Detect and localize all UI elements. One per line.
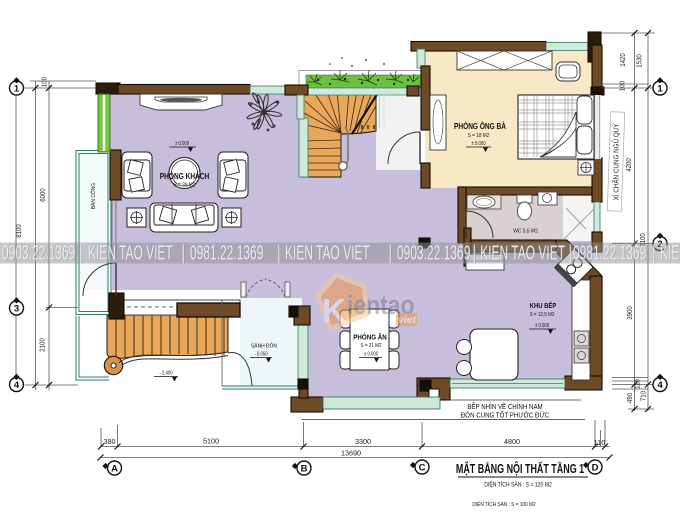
svg-text:PHÒNG KHÁCH: PHÒNG KHÁCH <box>160 171 209 181</box>
svg-text:710: 710 <box>640 391 648 401</box>
svg-text:4: 4 <box>657 380 663 391</box>
svg-text:4200: 4200 <box>626 158 634 172</box>
svg-text:B: B <box>301 464 308 475</box>
svg-text:viet: viet <box>398 314 417 326</box>
svg-text:BAN CÔNG: BAN CÔNG <box>90 183 98 209</box>
svg-text:13690: 13690 <box>341 449 361 458</box>
svg-text:± 0.000: ± 0.000 <box>364 351 378 356</box>
svg-text:100: 100 <box>619 81 627 91</box>
svg-text:WC 5,5 M2: WC 5,5 M2 <box>513 228 538 234</box>
svg-text:1: 1 <box>14 84 20 95</box>
svg-text:DIỆN TÍCH SÀN : S = 100 M2: DIỆN TÍCH SÀN : S = 100 M2 <box>472 500 535 509</box>
svg-text:3: 3 <box>14 304 19 315</box>
svg-text:SẢNH ĐÓN: SẢNH ĐÓN <box>251 342 277 350</box>
svg-text:D: D <box>592 463 599 474</box>
svg-text:± 0.000: ± 0.000 <box>471 141 485 146</box>
svg-text:490: 490 <box>627 393 635 403</box>
svg-text:PHÒNG ÔNG BÀ: PHÒNG ÔNG BÀ <box>454 121 507 131</box>
svg-text:C: C <box>419 463 426 474</box>
svg-text:380: 380 <box>104 437 116 446</box>
svg-text:S = 21 M2: S = 21 M2 <box>360 343 381 349</box>
svg-text:5100: 5100 <box>203 437 219 446</box>
svg-text:4: 4 <box>14 380 20 391</box>
svg-text:DIỆN TÍCH SÀN : S = 120 M2: DIỆN TÍCH SÀN : S = 120 M2 <box>484 480 552 489</box>
svg-text:S = 39 M2: S = 39 M2 <box>174 182 196 188</box>
svg-text:A: A <box>111 464 118 475</box>
svg-text:8100: 8100 <box>16 224 24 238</box>
svg-text:0903.22.1369|KIEN TAO VIET|098: 0903.22.1369|KIEN TAO VIET|0981.22.1369|… <box>2 243 680 265</box>
svg-text:100: 100 <box>41 77 49 87</box>
svg-text:K: K <box>322 292 346 329</box>
svg-text:2100: 2100 <box>39 338 47 352</box>
svg-text:6000: 6000 <box>40 188 48 202</box>
svg-text:- 2.400: - 2.400 <box>159 370 173 375</box>
svg-text:PHÒNG ĂN: PHÒNG ĂN <box>353 332 387 342</box>
svg-text:S = 18 M2: S = 18 M2 <box>468 133 490 139</box>
svg-text:- 0.050: - 0.050 <box>254 351 268 356</box>
svg-text:110: 110 <box>594 438 605 447</box>
svg-text:3900: 3900 <box>627 306 635 320</box>
svg-text:± 0.000: ± 0.000 <box>175 141 189 146</box>
svg-text:3300: 3300 <box>355 437 371 446</box>
svg-text:± 0.000: ± 0.000 <box>535 323 549 328</box>
svg-text:S = 12,5 M2: S = 12,5 M2 <box>530 312 555 318</box>
svg-text:4800: 4800 <box>504 437 520 446</box>
svg-text:MẶT BẰNG NỘI THẤT TẦNG 1: MẶT BẰNG NỘI THẤT TẦNG 1 <box>456 461 584 476</box>
svg-text:1: 1 <box>657 84 663 95</box>
svg-text:1420: 1420 <box>620 53 628 67</box>
svg-text:1530: 1530 <box>636 54 644 68</box>
svg-text:110: 110 <box>634 379 642 389</box>
